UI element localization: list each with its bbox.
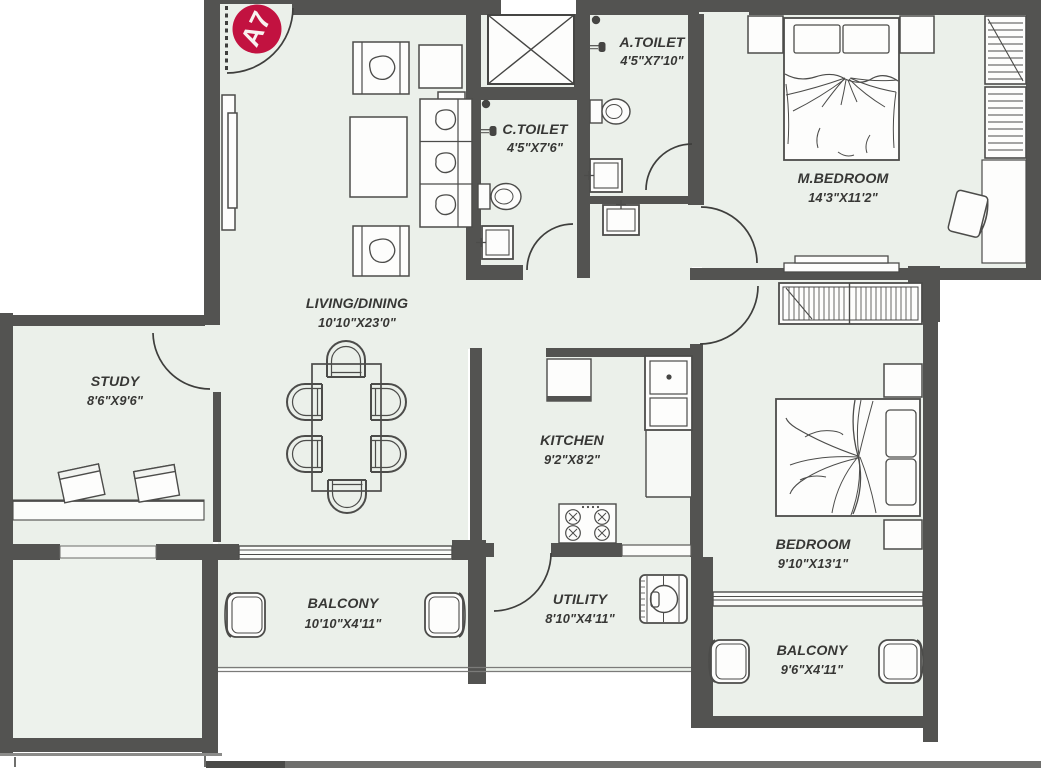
svg-text:10'10"X4'11": 10'10"X4'11" [305, 616, 383, 631]
svg-text:14'3"X11'2": 14'3"X11'2" [808, 190, 878, 205]
svg-text:KITCHEN: KITCHEN [540, 433, 604, 449]
svg-text:LIVING/DINING: LIVING/DINING [306, 296, 408, 312]
svg-text:BALCONY: BALCONY [308, 596, 380, 612]
svg-text:C.TOILET: C.TOILET [502, 122, 568, 138]
svg-text:UTILITY: UTILITY [553, 592, 609, 608]
svg-text:A.TOILET: A.TOILET [618, 35, 685, 51]
svg-text:9'6"X4'11": 9'6"X4'11" [781, 662, 844, 677]
svg-text:BALCONY: BALCONY [777, 643, 849, 659]
svg-text:8'10"X4'11": 8'10"X4'11" [545, 611, 615, 626]
svg-text:BEDROOM: BEDROOM [776, 537, 852, 553]
svg-text:4'5"X7'6": 4'5"X7'6" [506, 140, 564, 155]
svg-text:9'10"X13'1": 9'10"X13'1" [778, 556, 849, 571]
svg-text:9'2"X8'2": 9'2"X8'2" [544, 452, 601, 467]
svg-text:10'10"X23'0": 10'10"X23'0" [318, 315, 397, 330]
svg-text:STUDY: STUDY [91, 374, 141, 390]
svg-text:8'6"X9'6": 8'6"X9'6" [87, 393, 144, 408]
svg-text:4'5"X7'10": 4'5"X7'10" [619, 53, 684, 68]
svg-text:M.BEDROOM: M.BEDROOM [798, 171, 890, 187]
